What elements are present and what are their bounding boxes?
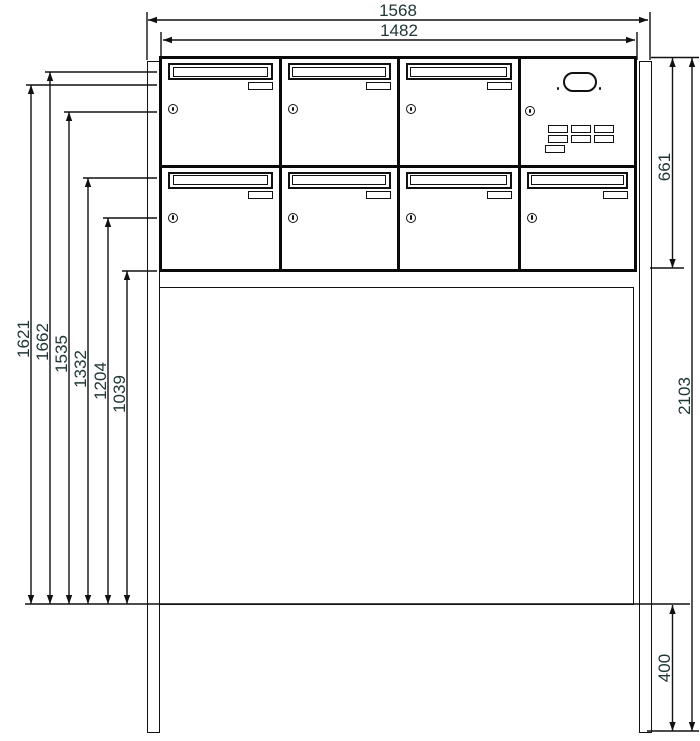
name-plate [248, 191, 273, 199]
arrowhead-right-icon [626, 37, 635, 43]
lock-icon [168, 104, 178, 114]
bell-button [548, 135, 568, 143]
lock-icon [288, 104, 298, 114]
lock-icon [525, 106, 535, 116]
dim-cabinet-height: 661 [650, 58, 684, 268]
bell-button [545, 145, 565, 153]
arrowhead-left-icon [148, 17, 157, 23]
dim-overall-height: 2103 [675, 58, 695, 731]
arrowhead-down-icon [28, 595, 34, 604]
arrowhead-down-icon [669, 259, 675, 268]
dimension-label: 1662 [33, 323, 52, 361]
mailbox-door [400, 59, 518, 165]
dimension-label: 2103 [675, 377, 694, 415]
dimension-label: 1621 [14, 320, 33, 358]
dimension-label: 1535 [52, 335, 71, 373]
bell-button [594, 125, 614, 133]
lock-icon [406, 213, 416, 223]
dim-height-1535: 1535 [52, 112, 157, 604]
letter-slot-flap [173, 175, 269, 185]
dim-overall-width: 1568 [147, 1, 650, 60]
stand-frame-panel [159, 287, 634, 605]
name-plate [366, 191, 391, 199]
arrowhead-down-icon [669, 722, 675, 731]
dimension-label: 1568 [379, 1, 417, 20]
dimension-label: 1332 [71, 350, 90, 388]
arrowhead-up-icon [124, 271, 130, 280]
arrowhead-up-icon [689, 58, 695, 67]
dim-cabinet-width: 1482 [161, 21, 637, 60]
letter-slot-icon [527, 172, 629, 189]
bell-button [571, 125, 591, 133]
arrowhead-down-icon [689, 722, 695, 731]
letter-slot-flap [410, 175, 507, 185]
mailbox-door [400, 168, 518, 270]
lock-icon [288, 213, 298, 223]
lock-icon [168, 213, 178, 223]
name-plate [487, 82, 512, 90]
arrowhead-up-icon [28, 85, 34, 94]
name-plate [366, 82, 391, 90]
letter-slot-flap [292, 175, 386, 185]
letter-slot-icon [406, 172, 512, 189]
arrowhead-left-icon [163, 37, 172, 43]
stand-post-left [147, 61, 160, 733]
dimension-label: 1204 [91, 362, 110, 400]
arrowhead-up-icon [85, 178, 91, 187]
arrowhead-up-icon [669, 58, 675, 67]
mailbox-door [521, 168, 635, 270]
mailbox-door [282, 59, 397, 165]
name-plate [248, 82, 273, 90]
arrowhead-up-icon [47, 72, 53, 81]
mailbox-door [162, 168, 279, 270]
letter-slot-icon [168, 172, 273, 189]
letter-slot-flap [531, 175, 624, 185]
arrowhead-down-icon [124, 595, 130, 604]
arrowhead-up-icon [66, 112, 72, 121]
letter-slot-icon [288, 63, 391, 80]
dimension-label: 1039 [110, 375, 129, 413]
arrowhead-down-icon [47, 595, 53, 604]
arrowhead-up-icon [669, 605, 675, 614]
dimension-label: 1482 [380, 21, 418, 40]
dimension-label: 400 [655, 654, 674, 682]
lock-icon [406, 104, 416, 114]
arrowhead-right-icon [639, 17, 648, 23]
dim-below-ground-depth: 400 [655, 605, 676, 731]
name-plate [603, 191, 628, 199]
lock-icon [527, 213, 537, 223]
mailbox-door [162, 59, 279, 165]
letter-slot-icon [406, 63, 512, 80]
letter-slot-flap [292, 67, 386, 77]
arrowhead-down-icon [105, 595, 111, 604]
dimension-label: 661 [655, 153, 674, 181]
bell-button [571, 135, 591, 143]
bell-button [548, 125, 568, 133]
screw-dot-icon [599, 87, 602, 90]
stand-post-right [639, 61, 652, 733]
letter-slot-icon [168, 63, 273, 80]
mailbox-door [282, 168, 397, 270]
letter-slot-icon [288, 172, 391, 189]
dim-height-1332: 1332 [71, 178, 157, 604]
speaker-grille-icon [563, 72, 597, 92]
arrowhead-down-icon [85, 595, 91, 604]
arrowhead-down-icon [66, 595, 72, 604]
intercom-panel [521, 59, 635, 165]
letter-slot-flap [173, 67, 269, 77]
name-plate [487, 191, 512, 199]
arrowhead-up-icon [105, 218, 111, 227]
dim-height-1621: 1621 [14, 85, 157, 604]
screw-dot-icon [557, 87, 560, 90]
letter-slot-flap [410, 67, 507, 77]
dim-height-1662: 1662 [33, 72, 157, 604]
bell-button [594, 135, 614, 143]
drawing-canvas: 1568 1482 1621 1662 [0, 0, 700, 741]
